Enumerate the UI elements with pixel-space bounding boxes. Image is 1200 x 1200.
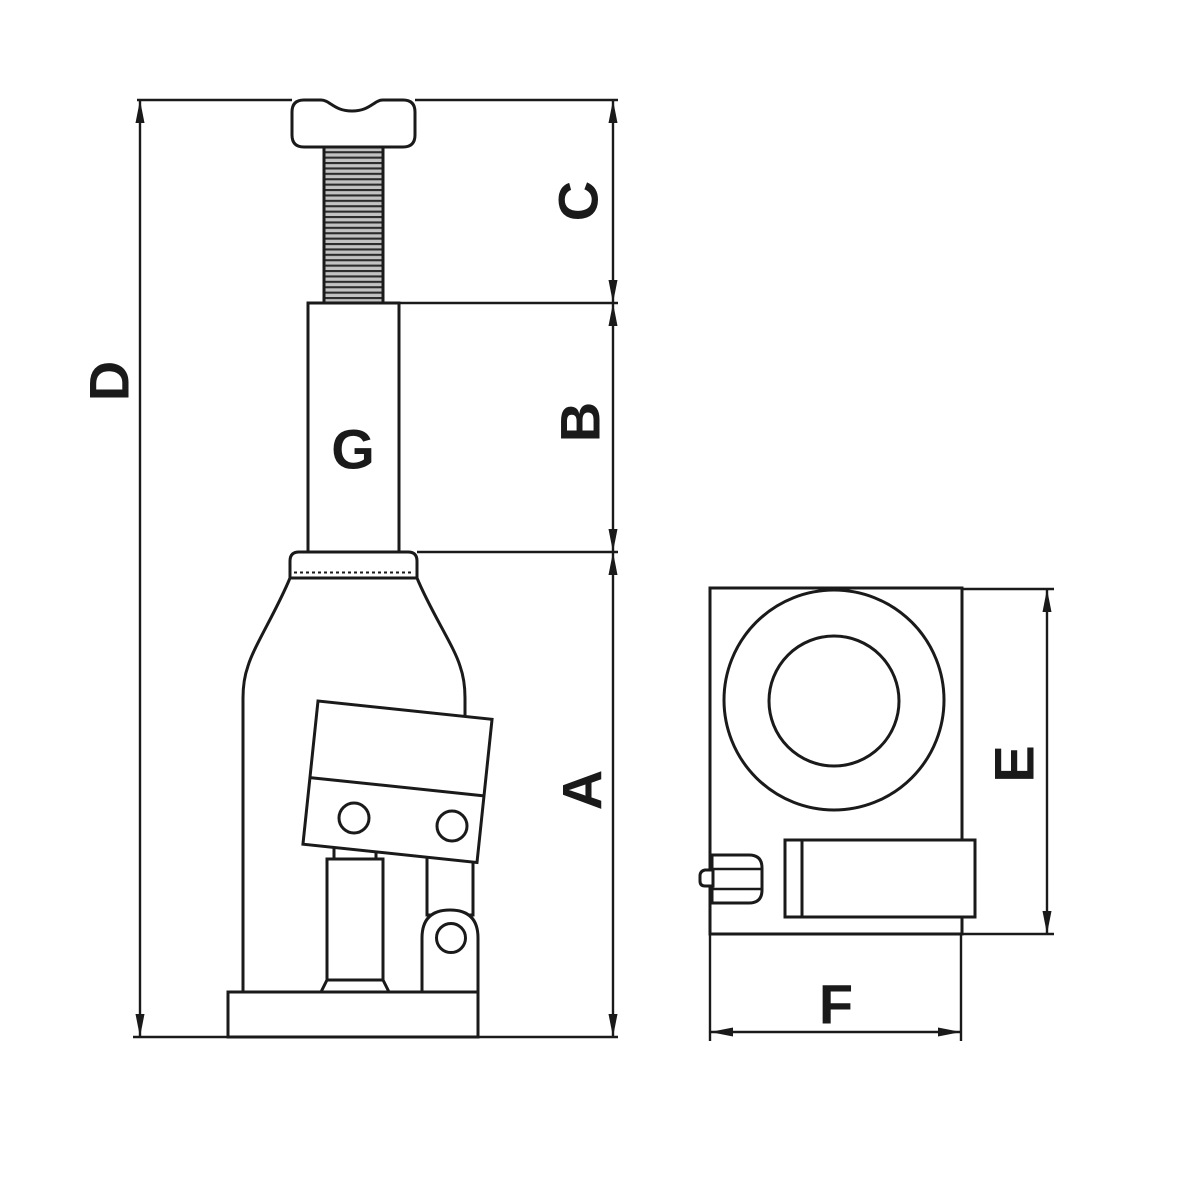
arrow-b-top xyxy=(609,303,618,326)
dim-label-c: C xyxy=(547,181,610,221)
dim-label-b: B xyxy=(549,402,612,442)
jack-base xyxy=(228,992,478,1037)
collar xyxy=(290,552,417,578)
arrow-d-top xyxy=(136,100,145,123)
release-valve-body xyxy=(712,855,762,903)
arrow-d-bottom xyxy=(136,1014,145,1037)
top-view: E F xyxy=(700,588,1054,1041)
pump-piston xyxy=(327,859,383,980)
screw-thread xyxy=(324,147,383,303)
technical-drawing-page: D C B A G xyxy=(0,0,1200,1200)
pump-block xyxy=(303,701,492,863)
pump-block-hole-left xyxy=(339,803,369,833)
pump-piston-foot xyxy=(321,980,389,992)
saddle-cap xyxy=(292,100,415,147)
link-arm-bar xyxy=(427,855,473,915)
dim-label-a: A xyxy=(551,770,614,810)
cylinder-inner-circle xyxy=(769,636,899,766)
release-valve-nub xyxy=(700,870,713,886)
arrow-a-bottom xyxy=(609,1014,618,1037)
arrow-e-top xyxy=(1043,589,1052,612)
pump-block-body xyxy=(303,701,492,863)
arrow-f-right xyxy=(938,1028,961,1037)
dim-label-f: F xyxy=(819,973,853,1036)
arrow-c-top xyxy=(609,100,618,123)
arrow-e-bottom xyxy=(1043,911,1052,934)
side-view: D C B A G xyxy=(78,100,619,1037)
pump-block-hole-right xyxy=(437,811,467,841)
arrow-a-top xyxy=(609,552,618,575)
dim-label-d: D xyxy=(78,361,141,401)
dim-label-g: G xyxy=(331,418,375,481)
jack-side-outline xyxy=(228,100,492,1037)
cylinder-outer-circle xyxy=(724,590,944,810)
arrow-f-left xyxy=(710,1028,733,1037)
bottle-jack-dimension-drawing: D C B A G xyxy=(0,0,1200,1200)
top-view-outline xyxy=(700,588,975,934)
arrow-b-bottom xyxy=(609,529,618,552)
link-pin-hole xyxy=(437,924,466,953)
pump-housing-top xyxy=(785,840,975,917)
arrow-c-bottom xyxy=(609,280,618,303)
dim-label-e: E xyxy=(983,745,1046,782)
